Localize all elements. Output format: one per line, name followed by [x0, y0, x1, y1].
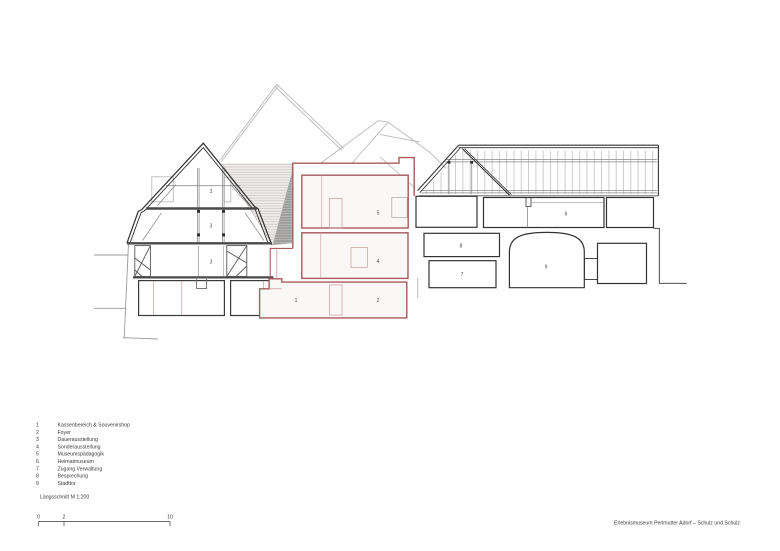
- legend-row: 3 Dauerausstellung: [36, 437, 98, 443]
- legend-number: 1: [36, 423, 39, 429]
- legend-row: 9 Stadttor: [36, 481, 76, 487]
- legend-row: 1 Kassenbereich & Souvenirshop: [36, 423, 130, 429]
- drawing-sheet: 3 3 3 1 2 4 5 6 7 8 9 1 Kassenbereich & …: [0, 0, 780, 551]
- legend-label: Dauerausstellung: [58, 437, 98, 443]
- legend-label: Museumspädagogik: [58, 452, 105, 458]
- room-marker: 7: [461, 272, 464, 278]
- room-marker: 2: [377, 298, 380, 304]
- legend-label: Zugang Verwaltung: [58, 466, 103, 472]
- legend-row: 5 Museumspädagogik: [36, 452, 104, 458]
- legend-number: 9: [36, 481, 39, 487]
- timber-panels: [135, 246, 247, 277]
- legend: 1 Kassenbereich & Souvenirshop 2 Foyer 3…: [36, 423, 130, 487]
- room-marker: 5: [377, 211, 380, 217]
- legend-label: Stadttor: [58, 481, 76, 487]
- scale-tick-label: 10: [167, 514, 173, 520]
- right-building: [416, 145, 687, 288]
- legend-number: 4: [36, 444, 39, 450]
- room-marker: 3: [210, 260, 213, 266]
- legend-label: Kassenbereich & Souvenirshop: [58, 423, 130, 429]
- room-marker: 6: [565, 211, 568, 217]
- legend-label: Sonderausstellung: [58, 444, 101, 450]
- project-title: Erlebnismuseum Perlmutter Adorf – Schulz…: [614, 521, 740, 527]
- room-marker: 3: [210, 223, 213, 229]
- legend-row: 4 Sonderausstellung: [36, 444, 101, 450]
- legend-label: Besprechung: [58, 474, 89, 480]
- legend-number: 8: [36, 474, 39, 480]
- legend-label: Heimatmuseum: [58, 459, 94, 465]
- scale-tick-label: 2: [63, 514, 66, 520]
- room-marker: 9: [545, 264, 548, 270]
- scale-tick-label: 0: [37, 514, 40, 520]
- drawing-caption: Längsschnitt M 1:200: [40, 495, 89, 501]
- room-marker: 3: [210, 189, 213, 195]
- section-drawing: 3 3 3 1 2 4 5 6 7 8 9 1 Kassenbereich & …: [0, 0, 780, 551]
- room-marker: 1: [295, 298, 298, 304]
- legend-row: 7 Zugang Verwaltung: [36, 466, 102, 472]
- legend-row: 8 Besprechung: [36, 474, 88, 480]
- legend-number: 7: [36, 466, 39, 472]
- legend-row: 6 Heimatmuseum: [36, 459, 94, 465]
- legend-number: 3: [36, 437, 39, 443]
- room-marker: 8: [460, 243, 463, 249]
- legend-label: Foyer: [58, 430, 72, 436]
- legend-number: 5: [36, 452, 39, 458]
- rear-roof-hatch: [223, 164, 293, 245]
- legend-row: 2 Foyer: [36, 430, 71, 436]
- terrain-lines: [94, 242, 158, 340]
- basement: [139, 279, 274, 316]
- room-marker: 4: [377, 259, 380, 265]
- legend-number: 6: [36, 459, 39, 465]
- legend-number: 2: [36, 430, 39, 436]
- scale-bar: 0 2 10: [37, 514, 173, 526]
